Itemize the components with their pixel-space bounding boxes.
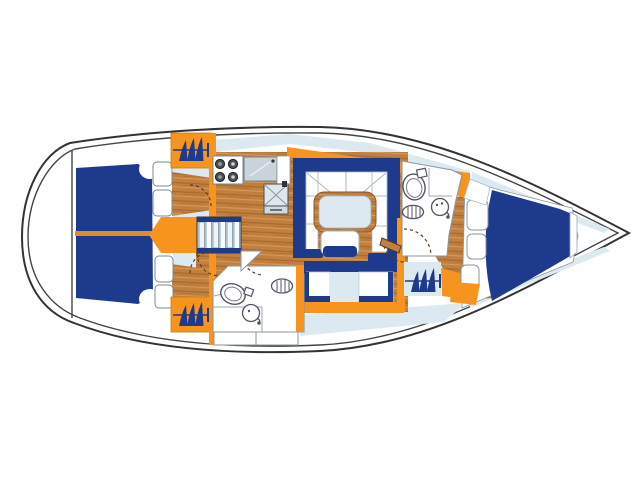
floor-plan-svg bbox=[0, 0, 640, 480]
stbd-settee-trim bbox=[359, 296, 393, 302]
counter-white bbox=[277, 156, 290, 184]
steps-bottom-edge bbox=[197, 248, 241, 253]
aft-head-wall bbox=[296, 266, 304, 332]
aft-port-cabin-sole bbox=[172, 172, 212, 216]
settee-back-top bbox=[293, 158, 400, 172]
fwd-orange-trim-bottom bbox=[450, 282, 480, 305]
aft-cabin-port-berth bbox=[171, 133, 212, 168]
settee-end-right bbox=[368, 253, 400, 262]
cockpit-cushion bbox=[153, 190, 172, 216]
steps-top-edge bbox=[197, 217, 241, 222]
boat-floor-plan bbox=[0, 0, 640, 480]
settee-end-left bbox=[293, 249, 323, 258]
aft-cabin-starboard-berth bbox=[171, 297, 212, 332]
icebox bbox=[264, 181, 288, 214]
companionway bbox=[149, 217, 241, 253]
aft-vent-icon bbox=[272, 279, 293, 293]
vberth-shelf bbox=[467, 234, 486, 259]
salon-stool-front bbox=[323, 246, 357, 257]
fwd-vent-icon bbox=[403, 205, 424, 218]
cockpit-cushion bbox=[155, 285, 173, 308]
cockpit-cushion bbox=[153, 162, 172, 186]
stbd-settee-back bbox=[304, 261, 399, 272]
cockpit-cushion bbox=[155, 256, 173, 282]
stbd-settee-trim bbox=[306, 296, 330, 302]
aft-head bbox=[213, 266, 304, 345]
stbd-settee-base bbox=[292, 302, 404, 313]
salon-table-top bbox=[319, 196, 371, 228]
galley-faucet bbox=[271, 159, 274, 162]
stbd-settee-trim bbox=[388, 272, 393, 302]
stbd-settee-mid bbox=[330, 272, 359, 302]
cockpit-table-line bbox=[75, 231, 153, 236]
bow-locker bbox=[570, 212, 577, 258]
settee-back-left bbox=[293, 158, 306, 258]
